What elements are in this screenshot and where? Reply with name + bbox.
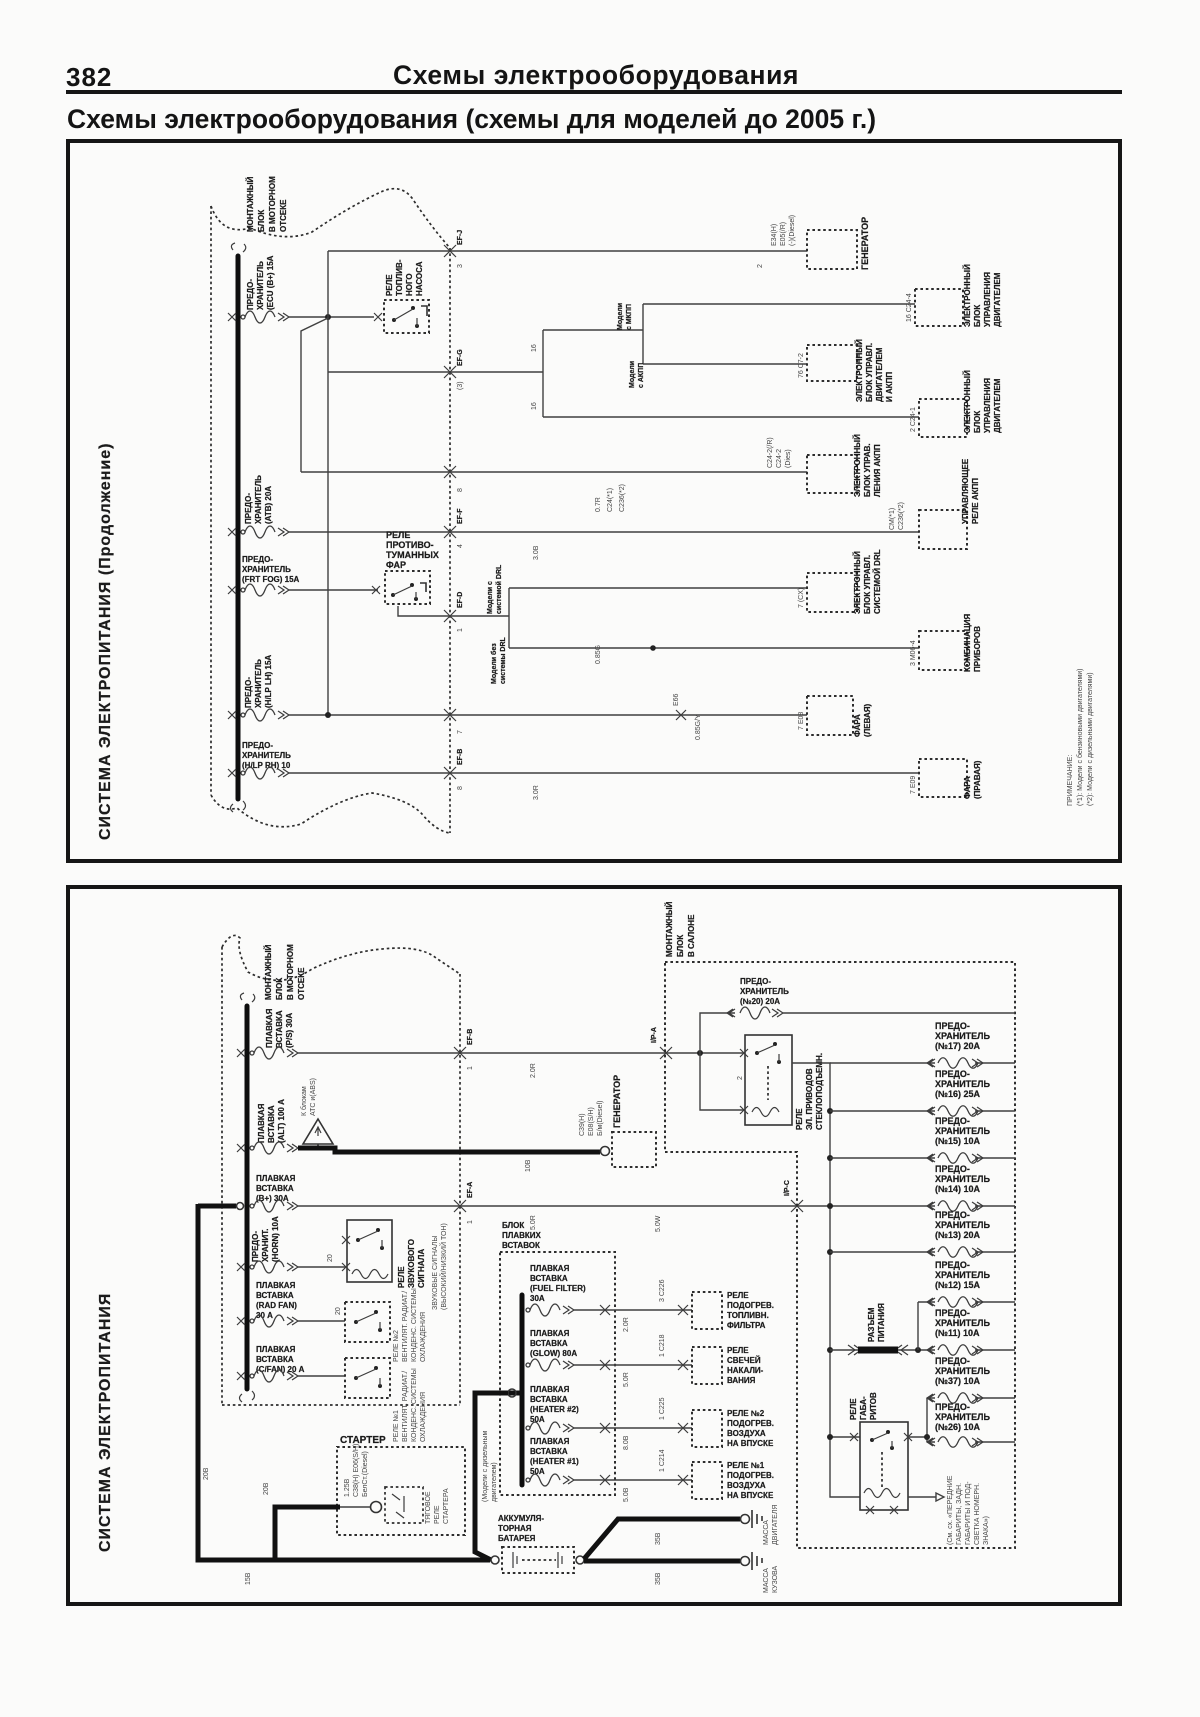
svg-text:В САЛОНЕ: В САЛОНЕ — [687, 914, 696, 957]
svg-text:5.0W: 5.0W — [655, 1215, 662, 1232]
svg-text:ВСТАВКА: ВСТАВКА — [530, 1339, 568, 1348]
svg-text:ХРАНИТЕЛЬ: ХРАНИТЕЛЬ — [935, 1079, 990, 1089]
svg-text:Модели: Модели — [629, 361, 636, 388]
svg-text:ЗНАКА»): ЗНАКА») — [983, 1516, 990, 1545]
svg-text:EF-D: EF-D — [457, 592, 464, 608]
svg-text:ПРЕДО-: ПРЕДО- — [251, 1231, 260, 1262]
svg-text:ДВИГАТЕЛЕМ: ДВИГАТЕЛЕМ — [993, 378, 1002, 433]
svg-text:НАСОСА: НАСОСА — [415, 261, 424, 296]
svg-text:ПРЕДО-: ПРЕДО- — [935, 1356, 970, 1366]
svg-text:5.0R: 5.0R — [623, 1372, 630, 1387]
svg-text:16: 16 — [531, 402, 538, 410]
svg-text:В МОТОРНОМ: В МОТОРНОМ — [286, 944, 295, 1000]
svg-text:ВСТАВКА: ВСТАВКА — [275, 1010, 284, 1048]
svg-text:СИГНАЛА: СИГНАЛА — [417, 1249, 426, 1288]
svg-text:(ПРАВАЯ): (ПРАВАЯ) — [973, 760, 982, 799]
svg-text:ПРЕДО-: ПРЕДО- — [935, 1308, 970, 1318]
svg-text:ВСТАВКА: ВСТАВКА — [530, 1447, 568, 1456]
svg-text:(ALT) 100 А: (ALT) 100 А — [277, 1099, 286, 1143]
svg-text:БАТАРЕЯ: БАТАРЕЯ — [498, 1534, 536, 1543]
svg-text:ХРАНИТЕЛЬ: ХРАНИТЕЛЬ — [256, 261, 265, 310]
svg-text:ФАР: ФАР — [386, 560, 406, 570]
svg-text:ПРЕДО-: ПРЕДО- — [935, 1260, 970, 1270]
svg-text:10B: 10B — [525, 1159, 532, 1172]
svg-text:ВСТАВОК: ВСТАВОК — [502, 1241, 540, 1250]
svg-text:ПИТАНИЯ: ПИТАНИЯ — [877, 1303, 886, 1342]
svg-text:3 C226: 3 C226 — [659, 1279, 666, 1302]
svg-text:двигателем): двигателем) — [491, 1462, 498, 1502]
svg-text:ПЛАВКАЯ: ПЛАВКАЯ — [530, 1264, 570, 1273]
svg-text:(№16) 25А: (№16) 25А — [935, 1089, 981, 1099]
svg-text:E66: E66 — [673, 693, 680, 706]
svg-text:EF-J: EF-J — [457, 230, 464, 245]
svg-text:ПРЕДО-: ПРЕДО- — [935, 1021, 970, 1031]
svg-text:I/P-C: I/P-C — [784, 1180, 791, 1196]
svg-text:Модели без: Модели без — [490, 643, 498, 684]
svg-text:Модели с: Модели с — [487, 581, 494, 614]
svg-text:БЛОК: БЛОК — [502, 1221, 524, 1230]
svg-text:(3): (3) — [457, 381, 464, 390]
svg-text:(FRT FOG) 15А: (FRT FOG) 15А — [242, 575, 300, 584]
svg-text:ГАБАРИТЫ, ЗАДН.: ГАБАРИТЫ, ЗАДН. — [956, 1483, 963, 1545]
svg-text:СТАРТЕРА: СТАРТЕРА — [443, 1488, 450, 1524]
svg-text:ПРЕДО-: ПРЕДО- — [935, 1116, 970, 1126]
svg-text:ПЛАВКАЯ: ПЛАВКАЯ — [530, 1329, 570, 1338]
svg-text:ГЕНЕРАТОР: ГЕНЕРАТОР — [612, 1075, 622, 1128]
svg-text:3 M06-4: 3 M06-4 — [910, 640, 917, 666]
svg-text:СИСТЕМА ЭЛЕКТРОПИТАНИЯ (Продол: СИСТЕМА ЭЛЕКТРОПИТАНИЯ (Продолжение) — [97, 443, 114, 840]
svg-text:СВЕТКА НОМЕРН.: СВЕТКА НОМЕРН. — [974, 1483, 981, 1545]
svg-text:3.0R: 3.0R — [533, 785, 540, 800]
svg-text:1: 1 — [457, 628, 464, 632]
svg-text:2 C24-1: 2 C24-1 — [910, 407, 917, 432]
svg-text:ТОПЛИВН.: ТОПЛИВН. — [727, 1311, 769, 1320]
svg-text:0.7R: 0.7R — [595, 497, 602, 512]
svg-text:ПРЕДО-: ПРЕДО- — [246, 279, 255, 310]
svg-text:(HEATER #1): (HEATER #1) — [530, 1457, 579, 1466]
svg-text:(-)(Diesel): (-)(Diesel) — [789, 215, 796, 246]
svg-text:ХРАНИТЕЛЬ: ХРАНИТЕЛЬ — [935, 1126, 990, 1136]
svg-text:ХРАНИТЕЛЬ: ХРАНИТЕЛЬ — [935, 1366, 990, 1376]
svg-text:3: 3 — [457, 264, 464, 268]
svg-text:ХРАНИТЕЛЬ: ХРАНИТЕЛЬ — [935, 1318, 990, 1328]
svg-text:АТС и(АВS): АТС и(АВS) — [310, 1078, 317, 1116]
svg-text:1.25B: 1.25B — [344, 1478, 351, 1497]
svg-text:E08(S/H): E08(S/H) — [588, 1107, 595, 1136]
svg-text:В МОТОРНОМ: В МОТОРНОМ — [268, 176, 277, 232]
svg-text:БЛОК УПРАВЛ.: БЛОК УПРАВЛ. — [865, 343, 874, 402]
svg-text:БЛОК: БЛОК — [973, 411, 982, 433]
svg-text:ХРАНИТЕЛЬ: ХРАНИТЕЛЬ — [935, 1412, 990, 1422]
svg-text:КОНДЕНС. СИСТЕМЫ: КОНДЕНС. СИСТЕМЫ — [411, 1368, 418, 1442]
svg-text:ВОЗДУХА: ВОЗДУХА — [727, 1481, 766, 1490]
svg-text:ВОЗДУХА: ВОЗДУХА — [727, 1429, 766, 1438]
svg-text:РЕЛЕ АКПП: РЕЛЕ АКПП — [971, 478, 980, 524]
svg-text:3.0B: 3.0B — [533, 545, 540, 560]
svg-text:ДВИГАТЕЛЕМ: ДВИГАТЕЛЕМ — [993, 272, 1002, 327]
svg-text:(№20) 20А: (№20) 20А — [740, 997, 780, 1006]
svg-text:(Модели с дизельным: (Модели с дизельным — [482, 1430, 489, 1502]
svg-text:(№15) 10А: (№15) 10А — [935, 1136, 981, 1146]
svg-text:ПРЕДО-: ПРЕДО- — [935, 1069, 970, 1079]
svg-text:2.0R: 2.0R — [530, 1063, 537, 1078]
svg-text:ЗВУКОВЫЕ СИГНАЛЫ: ЗВУКОВЫЕ СИГНАЛЫ — [432, 1235, 439, 1310]
svg-text:ФАРА: ФАРА — [853, 714, 862, 737]
svg-text:8.0B: 8.0B — [623, 1435, 630, 1450]
svg-text:ЭЛ. ПРИВОДОВ: ЭЛ. ПРИВОДОВ — [805, 1068, 814, 1130]
svg-text:5.0B: 5.0B — [623, 1487, 630, 1502]
svg-text:20: 20 — [335, 1307, 342, 1315]
svg-text:МОНТАЖНЫЙ: МОНТАЖНЫЙ — [246, 176, 255, 232]
svg-text:EF-F: EF-F — [457, 508, 464, 524]
svg-text:РАЗЪЕМ: РАЗЪЕМ — [867, 1307, 876, 1342]
svg-text:ГЕНЕРАТОР: ГЕНЕРАТОР — [860, 217, 870, 270]
svg-text:2.0R: 2.0R — [623, 1317, 630, 1332]
svg-text:ХРАНИТЕЛЬ: ХРАНИТЕЛЬ — [935, 1270, 990, 1280]
svg-text:C236(*2): C236(*2) — [619, 484, 626, 512]
svg-text:НА ВПУСКЕ: НА ВПУСКЕ — [727, 1439, 774, 1448]
svg-text:РЕЛЕ: РЕЛЕ — [727, 1346, 749, 1355]
svg-text:КУЗОВА: КУЗОВА — [772, 1566, 779, 1593]
svg-text:КОМБИНАЦИЯ: КОМБИНАЦИЯ — [963, 614, 972, 672]
svg-text:ХРАНИТ.: ХРАНИТ. — [261, 1229, 270, 1262]
svg-text:ПРИМЕЧАНИЕ:: ПРИМЕЧАНИЕ: — [1067, 755, 1074, 806]
svg-text:(ВЫСОКИЙ/НИЗКИЙ ТОН): (ВЫСОКИЙ/НИЗКИЙ ТОН) — [439, 1223, 448, 1310]
svg-text:ХРАНИТЕЛЬ: ХРАНИТЕЛЬ — [254, 659, 263, 708]
svg-text:1: 1 — [467, 1066, 474, 1070]
svg-text:БЛОК: БЛОК — [275, 978, 284, 1000]
svg-text:CM(*1): CM(*1) — [889, 508, 896, 530]
svg-text:C236(*2): C236(*2) — [898, 502, 905, 530]
svg-text:АККУМУЛЯ-: АККУМУЛЯ- — [498, 1514, 544, 1523]
svg-text:с МКПП: с МКПП — [626, 304, 633, 330]
svg-text:МАССА: МАССА — [763, 1568, 770, 1593]
svg-text:C39(H): C39(H) — [579, 1113, 586, 1136]
svg-text:ПРЕДО-: ПРЕДО- — [244, 677, 253, 708]
svg-text:7: 7 — [457, 730, 464, 734]
svg-text:УПРАВЛЕНИЯ: УПРАВЛЕНИЯ — [983, 272, 992, 327]
svg-text:ПРЕДО-: ПРЕДО- — [244, 493, 253, 524]
svg-text:БЛОК УПРАВ.: БЛОК УПРАВ. — [863, 443, 872, 497]
svg-text:ОХЛАЖДЕНИЯ: ОХЛАЖДЕНИЯ — [420, 1312, 427, 1362]
svg-text:НОГО: НОГО — [405, 273, 414, 296]
svg-text:(№12) 15А: (№12) 15А — [935, 1280, 981, 1290]
svg-text:ТУМАННЫХ: ТУМАННЫХ — [386, 550, 439, 560]
svg-text:35B: 35B — [655, 1532, 662, 1545]
svg-text:ТОРНАЯ: ТОРНАЯ — [498, 1524, 532, 1533]
svg-text:ГАБАРИТЫ И ПОД-: ГАБАРИТЫ И ПОД- — [965, 1481, 972, 1545]
svg-text:ПЛАВКАЯ: ПЛАВКАЯ — [256, 1345, 296, 1354]
svg-text:РЕЛЕ №1: РЕЛЕ №1 — [393, 1410, 400, 1442]
svg-text:C38(H) E06(S/H): C38(H) E06(S/H) — [353, 1444, 360, 1497]
svg-text:И АКПП: И АКПП — [885, 372, 894, 402]
svg-text:EF-G: EF-G — [457, 349, 464, 366]
svg-text:15B: 15B — [245, 1572, 252, 1585]
svg-text:C24-2: C24-2 — [776, 449, 783, 468]
svg-text:(ATВ) 20А: (ATВ) 20А — [264, 486, 273, 524]
svg-text:системы DRL: системы DRL — [500, 636, 507, 684]
svg-text:(ECU (B+) 15A: (ECU (B+) 15A — [266, 255, 275, 310]
svg-text:НА ВПУСКЕ: НА ВПУСКЕ — [727, 1491, 774, 1500]
svg-text:(C/FAN) 20 А: (C/FAN) 20 А — [256, 1365, 305, 1374]
svg-text:(См. сх. «ПЕРЕДНИЕ: (См. сх. «ПЕРЕДНИЕ — [947, 1475, 954, 1545]
svg-text:Модели: Модели — [617, 303, 624, 330]
svg-text:8: 8 — [457, 488, 464, 492]
svg-text:EF-B: EF-B — [467, 1029, 474, 1045]
svg-text:ПРЕДО-: ПРЕДО- — [740, 977, 771, 986]
svg-text:БЛОК: БЛОК — [257, 210, 266, 232]
svg-text:БЛОК: БЛОК — [676, 935, 685, 957]
svg-text:(*2): Модели с дизельными двиг: (*2): Модели с дизельными двигателями) — [1087, 672, 1094, 806]
svg-text:ПРЕДО-: ПРЕДО- — [242, 741, 273, 750]
svg-text:4: 4 — [457, 544, 464, 548]
svg-text:СИСТЕМА ЭЛЕКТРОПИТАНИЯ: СИСТЕМА ЭЛЕКТРОПИТАНИЯ — [97, 1293, 114, 1552]
svg-text:20B: 20B — [263, 1482, 270, 1495]
svg-text:ДВИГАТЕЛЕМ: ДВИГАТЕЛЕМ — [875, 347, 884, 402]
svg-text:7 (CX): 7 (CX) — [798, 588, 805, 608]
svg-text:1: 1 — [467, 1220, 474, 1224]
svg-text:ПЛАВКИХ: ПЛАВКИХ — [502, 1231, 542, 1240]
svg-text:РЕЛЕ: РЕЛЕ — [849, 1398, 858, 1420]
svg-text:8: 8 — [457, 786, 464, 790]
svg-text:ВЕНТИЛЯТ. РАДИАТ./: ВЕНТИЛЯТ. РАДИАТ./ — [402, 1371, 409, 1442]
svg-text:БелСт.(Diesel): БелСт.(Diesel) — [362, 1451, 369, 1497]
svg-text:РЕЛЕ: РЕЛЕ — [385, 274, 394, 296]
svg-text:1 C218: 1 C218 — [659, 1334, 666, 1357]
svg-text:5.0R: 5.0R — [530, 1215, 537, 1230]
svg-text:с АКПП: с АКПП — [638, 363, 645, 388]
svg-text:ЭЛЕКТРОННЫЙ: ЭЛЕКТРОННЫЙ — [853, 551, 862, 614]
svg-text:ПРЕДО-: ПРЕДО- — [935, 1210, 970, 1220]
svg-text:E05(/R): E05(/R) — [780, 222, 787, 246]
svg-text:РЕЛЕ: РЕЛЕ — [727, 1291, 749, 1300]
svg-text:ЭЛЕКТРОННЫЙ: ЭЛЕКТРОННЫЙ — [963, 370, 972, 433]
svg-text:0.85G/Y: 0.85G/Y — [695, 714, 702, 740]
svg-text:ХРАНИТЕЛЬ: ХРАНИТЕЛЬ — [254, 475, 263, 524]
svg-text:К блокам: К блокам — [300, 1086, 308, 1116]
svg-text:(№37) 10А: (№37) 10А — [935, 1376, 981, 1386]
svg-text:ВЕНТИЛЯТ. РАДИАТ./: ВЕНТИЛЯТ. РАДИАТ./ — [402, 1291, 409, 1362]
svg-text:7 E08: 7 E08 — [798, 712, 805, 730]
svg-text:СТАРТЕР: СТАРТЕР — [340, 1435, 386, 1446]
svg-text:ХРАНИТЕЛЬ: ХРАНИТЕЛЬ — [935, 1031, 990, 1041]
svg-text:ВСТАВКА: ВСТАВКА — [256, 1291, 294, 1300]
svg-text:(Dies): (Dies) — [785, 449, 792, 468]
svg-text:(№13) 20А: (№13) 20А — [935, 1230, 981, 1240]
svg-text:МАССА: МАССА — [763, 1520, 770, 1545]
svg-text:МОНТАЖНЫЙ: МОНТАЖНЫЙ — [665, 901, 674, 957]
svg-text:МОНТАЖНЫЙ: МОНТАЖНЫЙ — [264, 944, 273, 1000]
svg-text:EF-B: EF-B — [457, 749, 464, 765]
svg-text:ОХЛАЖДЕНИЯ: ОХЛАЖДЕНИЯ — [420, 1392, 427, 1442]
svg-text:2: 2 — [737, 1076, 744, 1080]
svg-text:ТЯГОВОЕ: ТЯГОВОЕ — [425, 1491, 432, 1524]
svg-text:(RAD FAN): (RAD FAN) — [256, 1301, 297, 1310]
svg-text:C24(*1): C24(*1) — [607, 488, 614, 512]
svg-text:30А: 30А — [530, 1294, 545, 1303]
svg-text:СТЕКЛОПОДЪЕМН.: СТЕКЛОПОДЪЕМН. — [815, 1053, 824, 1130]
svg-text:ВСТАВКА: ВСТАВКА — [256, 1355, 294, 1364]
svg-text:ПЛАВКАЯ: ПЛАВКАЯ — [265, 1008, 274, 1048]
svg-text:I/P-A: I/P-A — [651, 1027, 658, 1043]
svg-text:УПРАВЛЕНИЯ: УПРАВЛЕНИЯ — [983, 378, 992, 433]
svg-text:СИСТЕМОЙ DRL: СИСТЕМОЙ DRL — [873, 549, 882, 614]
svg-text:Б/м(Diesel): Б/м(Diesel) — [597, 1101, 604, 1136]
svg-text:системой DRL: системой DRL — [495, 564, 503, 614]
svg-text:(*1): Модели с бензиновыми дви: (*1): Модели с бензиновыми двигателями) — [1076, 668, 1084, 806]
svg-text:РЕЛЕ: РЕЛЕ — [795, 1108, 804, 1130]
svg-text:ХРАНИТЕЛЬ: ХРАНИТЕЛЬ — [242, 565, 291, 574]
svg-text:РИТОВ: РИТОВ — [869, 1392, 878, 1420]
svg-text:ПОДОГРЕВ.: ПОДОГРЕВ. — [727, 1471, 774, 1480]
svg-text:БЛОК УПРАВЛ.: БЛОК УПРАВЛ. — [863, 555, 872, 614]
svg-text:РЕЛЕ №2: РЕЛЕ №2 — [727, 1409, 765, 1418]
svg-text:ПРОТИВО-: ПРОТИВО- — [386, 540, 434, 550]
svg-text:ВСТАВКА: ВСТАВКА — [530, 1274, 568, 1283]
svg-text:ТОПЛИВ-: ТОПЛИВ- — [395, 259, 404, 296]
svg-text:ПОДОГРЕВ.: ПОДОГРЕВ. — [727, 1419, 774, 1428]
svg-text:(№14) 10А: (№14) 10А — [935, 1184, 981, 1194]
svg-text:РЕЛЕ: РЕЛЕ — [397, 1266, 406, 1288]
svg-text:УПРАВЛЯЮЩЕЕ: УПРАВЛЯЮЩЕЕ — [961, 458, 970, 524]
svg-text:ПРЕДО-: ПРЕДО- — [935, 1402, 970, 1412]
svg-text:КОНДЕНС. СИСТЕМЫ: КОНДЕНС. СИСТЕМЫ — [411, 1288, 418, 1362]
svg-text:НАКАЛИ-: НАКАЛИ- — [727, 1366, 764, 1375]
svg-text:76 C7-2: 76 C7-2 — [798, 353, 805, 378]
svg-text:ВСТАВКА: ВСТАВКА — [256, 1184, 294, 1193]
svg-text:7 E09: 7 E09 — [910, 776, 917, 794]
svg-text:(ЛЕВАЯ): (ЛЕВАЯ) — [863, 703, 872, 737]
svg-text:(№17) 20А: (№17) 20А — [935, 1041, 981, 1051]
svg-text:ВАНИЯ: ВАНИЯ — [727, 1376, 756, 1385]
svg-text:16 C24-4: 16 C24-4 — [906, 293, 913, 322]
svg-text:C24-2(/R): C24-2(/R) — [767, 437, 774, 468]
svg-text:(H/LP LH) 15А: (H/LP LH) 15А — [264, 655, 273, 708]
svg-text:20B: 20B — [203, 1467, 210, 1480]
svg-text:БЛОК: БЛОК — [973, 305, 982, 327]
svg-text:(№26) 10А: (№26) 10А — [935, 1422, 981, 1432]
svg-text:ПЛАВКАЯ: ПЛАВКАЯ — [530, 1385, 570, 1394]
svg-text:ХРАНИТЕЛЬ: ХРАНИТЕЛЬ — [935, 1174, 990, 1184]
svg-text:ПРЕДО-: ПРЕДО- — [935, 1164, 970, 1174]
svg-text:(HORN) 10А: (HORN) 10А — [271, 1216, 280, 1262]
svg-text:ФАРА: ФАРА — [963, 776, 972, 799]
svg-text:EF-A: EF-A — [467, 1182, 474, 1198]
svg-text:ПЛАВКАЯ: ПЛАВКАЯ — [256, 1174, 296, 1183]
svg-text:ПЛАВКАЯ: ПЛАВКАЯ — [257, 1103, 266, 1143]
svg-text:(P/S) 30А: (P/S) 30А — [285, 1013, 294, 1048]
svg-text:ВСТАВКА: ВСТАВКА — [267, 1105, 276, 1143]
svg-text:(№11) 10А: (№11) 10А — [935, 1328, 980, 1338]
svg-text:ФИЛЬТРА: ФИЛЬТРА — [727, 1321, 766, 1330]
svg-text:ВСТАВКА: ВСТАВКА — [530, 1395, 568, 1404]
svg-text:РЕЛЕ: РЕЛЕ — [386, 530, 410, 540]
svg-text:35B: 35B — [655, 1572, 662, 1585]
svg-text:ПЛАВКАЯ: ПЛАВКАЯ — [256, 1281, 296, 1290]
svg-text:2: 2 — [757, 264, 764, 268]
svg-text:1 C214: 1 C214 — [659, 1449, 666, 1472]
svg-text:РЕЛЕ №1: РЕЛЕ №1 — [727, 1461, 765, 1470]
svg-text:(GLOW) 80А: (GLOW) 80А — [530, 1349, 577, 1358]
svg-text:ЭЛЕКТРОННЫЙ: ЭЛЕКТРОННЫЙ — [853, 434, 862, 497]
svg-text:ЛЕНИЯ АКПП: ЛЕНИЯ АКПП — [873, 444, 882, 497]
svg-text:20: 20 — [327, 1254, 334, 1262]
svg-text:1 C225: 1 C225 — [659, 1397, 666, 1420]
svg-text:ОТСЕКЕ: ОТСЕКЕ — [297, 967, 306, 1000]
svg-text:ГАБА-: ГАБА- — [859, 1396, 868, 1420]
svg-text:ЭЛЕКТРОННЫЙ: ЭЛЕКТРОННЫЙ — [963, 264, 972, 327]
svg-text:ДВИГАТЕЛЯ: ДВИГАТЕЛЯ — [772, 1505, 779, 1545]
svg-text:ЭЛЕКТРОННЫЙ: ЭЛЕКТРОННЫЙ — [855, 339, 864, 402]
svg-text:ХРАНИТЕЛЬ: ХРАНИТЕЛЬ — [242, 751, 291, 760]
svg-text:ХРАНИТЕЛЬ: ХРАНИТЕЛЬ — [740, 987, 789, 996]
svg-text:ПЛАВКАЯ: ПЛАВКАЯ — [530, 1437, 570, 1446]
svg-text:ЗВУКОВОГО: ЗВУКОВОГО — [407, 1239, 416, 1288]
svg-text:ХРАНИТЕЛЬ: ХРАНИТЕЛЬ — [935, 1220, 990, 1230]
svg-text:РЕЛЕ: РЕЛЕ — [434, 1505, 441, 1524]
svg-text:0.85G: 0.85G — [595, 645, 602, 664]
svg-text:16: 16 — [531, 344, 538, 352]
svg-text:ОТСЕКЕ: ОТСЕКЕ — [279, 199, 288, 232]
svg-text:(FUEL FILTER): (FUEL FILTER) — [530, 1284, 586, 1293]
svg-text:ПОДОГРЕВ.: ПОДОГРЕВ. — [727, 1301, 774, 1310]
svg-text:РЕЛЕ №2: РЕЛЕ №2 — [393, 1330, 400, 1362]
svg-text:(HEATER #2): (HEATER #2) — [530, 1405, 579, 1414]
svg-text:E34(H): E34(H) — [771, 224, 778, 246]
svg-text:ПРЕДО-: ПРЕДО- — [242, 555, 273, 564]
svg-text:ПРИБОРОВ: ПРИБОРОВ — [973, 626, 982, 672]
svg-text:СВЕЧЕЙ: СВЕЧЕЙ — [727, 1356, 761, 1365]
